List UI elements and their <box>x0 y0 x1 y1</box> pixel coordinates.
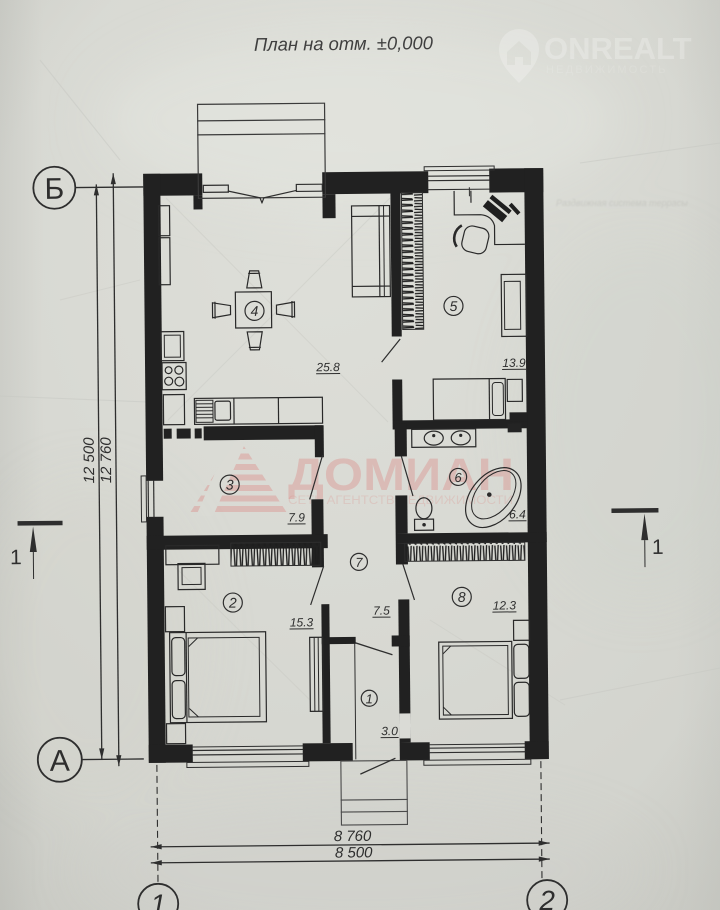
svg-text:12 500: 12 500 <box>81 437 98 484</box>
svg-text:1: 1 <box>10 546 22 569</box>
svg-text:5: 5 <box>450 298 458 314</box>
svg-text:1: 1 <box>150 889 166 910</box>
svg-text:15.3: 15.3 <box>290 615 314 629</box>
svg-text:7.5: 7.5 <box>373 604 390 618</box>
svg-text:План на отм. ±0,000: План на отм. ±0,000 <box>254 32 434 55</box>
svg-text:ONREALT: ONREALT <box>544 31 692 66</box>
svg-text:6: 6 <box>454 470 462 485</box>
svg-text:1: 1 <box>652 536 664 559</box>
svg-text:7.9: 7.9 <box>288 510 305 524</box>
svg-text:7: 7 <box>355 555 363 570</box>
svg-text:Б: Б <box>44 173 64 206</box>
svg-text:НЕДВИЖИМОСТЬ: НЕДВИЖИМОСТЬ <box>546 64 668 76</box>
svg-text:25.8: 25.8 <box>315 360 340 374</box>
svg-text:А: А <box>50 745 70 778</box>
svg-text:4: 4 <box>251 303 259 319</box>
svg-text:8 500: 8 500 <box>335 844 373 861</box>
svg-text:12.3: 12.3 <box>493 598 517 612</box>
svg-text:2: 2 <box>538 885 555 910</box>
svg-text:3: 3 <box>226 477 234 493</box>
svg-text:8 760: 8 760 <box>334 828 372 845</box>
svg-text:1: 1 <box>366 691 373 706</box>
svg-text:6.4: 6.4 <box>509 507 526 521</box>
svg-text:2: 2 <box>228 595 237 611</box>
svg-text:Раздвижная система террасы: Раздвижная система террасы <box>556 198 688 208</box>
svg-text:8: 8 <box>458 589 466 605</box>
svg-text:13.9: 13.9 <box>502 356 526 370</box>
svg-text:12 760: 12 760 <box>98 437 115 484</box>
svg-text:3.0: 3.0 <box>381 724 398 738</box>
